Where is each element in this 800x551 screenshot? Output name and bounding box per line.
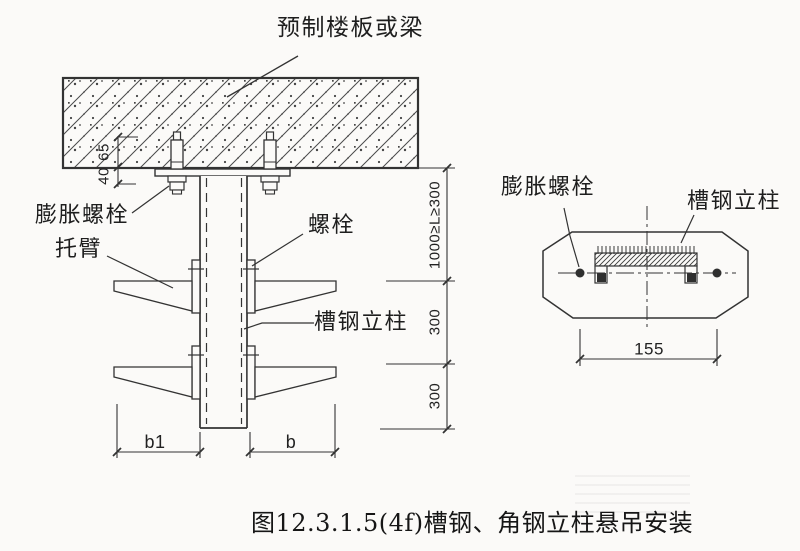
expansion-bolt-label-right: 膨胀螺栓 bbox=[501, 176, 595, 198]
dim-bottom-spacing: 300 bbox=[428, 383, 443, 410]
expansion-bolt-dot-left bbox=[576, 269, 585, 278]
concrete-slab bbox=[63, 78, 418, 168]
dim-top-spacing: 1000≥L≥300 bbox=[428, 181, 443, 269]
bracket-arm-label: 托臂 bbox=[55, 238, 102, 260]
anchor-bolt-right bbox=[261, 132, 279, 194]
channel-column-elevation bbox=[200, 176, 247, 428]
dim-b1: b1 bbox=[144, 433, 165, 451]
slab-label: 预制楼板或梁 bbox=[277, 16, 424, 39]
anchor-bolt-left bbox=[168, 132, 186, 194]
bolt-head-left bbox=[597, 273, 606, 282]
dim-155-text: 155 bbox=[634, 341, 664, 358]
dim-mid-spacing: 300 bbox=[428, 309, 443, 336]
expansion-bolt-leader bbox=[132, 186, 169, 213]
dim-b: b bbox=[286, 433, 297, 451]
channel-column-leader bbox=[244, 323, 314, 329]
channel-column-label-left: 槽钢立柱 bbox=[314, 311, 408, 333]
dimension-chain-right bbox=[380, 164, 455, 433]
bolt-label: 螺栓 bbox=[308, 214, 355, 236]
technical-drawing-page: 预制楼板或梁 膨胀螺栓 托臂 螺栓 槽钢立柱 膨胀螺栓 槽钢立柱 65 40 1… bbox=[0, 0, 800, 551]
bolt-head-right bbox=[687, 273, 696, 282]
base-plate bbox=[155, 169, 290, 176]
channel-column-label-right: 槽钢立柱 bbox=[687, 190, 781, 212]
figure-caption: 图12.3.1.5(4f)槽钢、角钢立柱悬吊安装 bbox=[251, 503, 693, 538]
expansion-bolt-dot-right bbox=[713, 269, 722, 278]
expansion-bolt-label-left: 膨胀螺栓 bbox=[35, 204, 129, 226]
dim-embed-depth: 65 bbox=[97, 143, 112, 161]
bolt-leader bbox=[252, 234, 303, 266]
dim-protrusion: 40 bbox=[97, 167, 112, 185]
